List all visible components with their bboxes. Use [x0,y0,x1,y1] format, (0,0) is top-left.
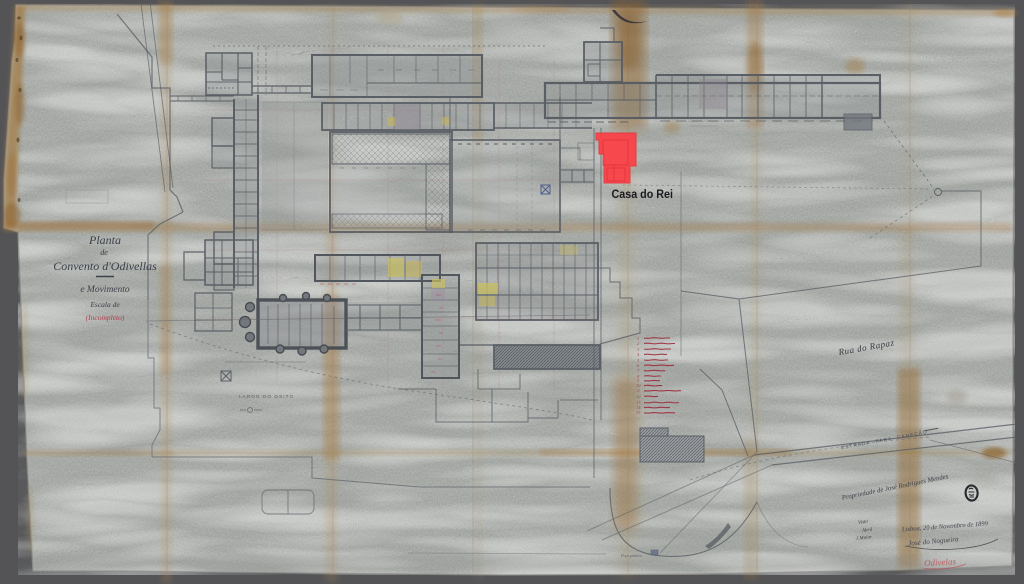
svg-text:Casa do Rei: Casa do Rei [612,188,674,201]
svg-text:Odivelas: Odivelas [924,556,957,568]
svg-text:Convento d'Odivellas: Convento d'Odivellas [53,259,157,273]
svg-text:(Incompleto): (Incompleto) [86,313,125,322]
svg-text:15: 15 [636,410,641,415]
svg-text:Poço publico: Poço publico [620,553,642,558]
svg-text:12: 12 [636,394,641,399]
svg-text:LARGO DO OSITO: LARGO DO OSITO [239,394,294,399]
svg-text:Planta: Planta [88,233,121,247]
svg-text:Escala de: Escala de [89,300,120,309]
svg-text:11: 11 [636,388,640,393]
svg-text:de: de [100,248,108,257]
svg-text:e Movimento: e Movimento [80,285,130,295]
